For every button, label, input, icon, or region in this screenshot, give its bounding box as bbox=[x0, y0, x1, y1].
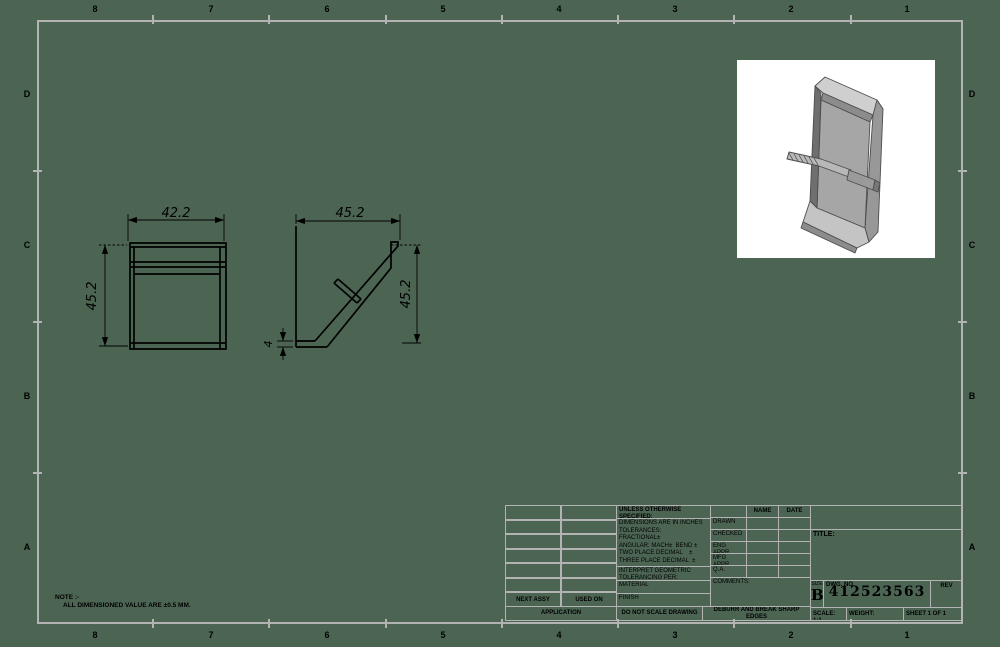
interpret-geometric-label: INTERPRET GEOMETRIC TOLERANCING PER: bbox=[616, 566, 711, 581]
dim-front-height: 45.2 bbox=[85, 282, 100, 311]
do-not-scale-label: DO NOT SCALE DRAWING bbox=[616, 606, 703, 621]
next-assy-label: NEXT ASSY bbox=[505, 592, 561, 607]
dim-side-width: 45.2 bbox=[336, 206, 365, 221]
size-cell: SIZE B bbox=[810, 580, 824, 608]
table-cell bbox=[561, 520, 617, 535]
front-view: 42.2 45.2 bbox=[85, 206, 226, 349]
tolerance-line: FRACTIONAL± bbox=[619, 535, 708, 543]
side-view: 45.2 45.2 4 bbox=[262, 206, 421, 360]
table-cell bbox=[561, 505, 617, 520]
tolerance-line: TWO PLACE DECIMAL ± bbox=[619, 550, 708, 558]
dwg-number: 412523563 bbox=[826, 589, 928, 596]
table-cell bbox=[561, 578, 617, 593]
note-line1: NOTE :- bbox=[55, 594, 191, 602]
tolerance-line: DIMENSIONS ARE IN INCHES bbox=[619, 520, 708, 528]
unless-otherwise-specified: UNLESS OTHERWISE SPECIFIED: bbox=[616, 505, 711, 519]
deburr-label: DEBURR AND BREAK SHARP EDGES bbox=[702, 606, 811, 621]
table-cell bbox=[505, 549, 561, 564]
rev-label: REV bbox=[930, 580, 963, 608]
table-cell bbox=[505, 578, 561, 593]
title-label: TITLE: bbox=[810, 529, 963, 581]
size-value: B bbox=[811, 588, 823, 603]
isometric-part bbox=[737, 60, 935, 258]
dwg-no-cell: DWG. NO. 412523563 bbox=[823, 580, 931, 608]
tolerance-line: THREE PLACE DECIMAL ± bbox=[619, 558, 708, 566]
used-on-label: USED ON bbox=[561, 592, 617, 607]
scale-label: SCALE: 1:1 bbox=[810, 607, 847, 621]
table-cell bbox=[505, 520, 561, 535]
weight-label: WEIGHT: bbox=[846, 607, 904, 621]
dim-front-width: 42.2 bbox=[162, 206, 191, 221]
dim-side-thickness: 4 bbox=[262, 341, 275, 348]
application-table: NEXT ASSY USED ON bbox=[505, 505, 617, 607]
table-cell bbox=[505, 563, 561, 578]
application-label: APPLICATION bbox=[505, 606, 617, 621]
table-cell bbox=[561, 563, 617, 578]
table-cell bbox=[505, 534, 561, 549]
tolerance-block: DIMENSIONS ARE IN INCHES TOLERANCES: FRA… bbox=[616, 518, 711, 567]
drawing-note: NOTE :- ALL DIMENSIONED VALUE ARE ±0.5 M… bbox=[55, 594, 191, 610]
note-line2: ALL DIMENSIONED VALUE ARE ±0.5 MM. bbox=[55, 602, 191, 610]
comments-label: COMMENTS: bbox=[710, 577, 811, 607]
material-label: MATERIAL bbox=[616, 580, 711, 594]
table-cell bbox=[561, 549, 617, 564]
tolerance-line: ANGULAR: MACH± BEND ± bbox=[619, 543, 708, 551]
dim-side-height: 45.2 bbox=[399, 280, 414, 309]
sheet-label: SHEET 1 OF 1 bbox=[903, 607, 963, 621]
isometric-view bbox=[737, 60, 935, 258]
table-cell bbox=[810, 505, 963, 530]
table-cell bbox=[505, 505, 561, 520]
drawing-sheet: 8 7 6 5 4 3 2 1 8 7 6 5 4 3 2 1 D C B A … bbox=[0, 0, 1000, 647]
finish-label: FINISH bbox=[616, 593, 711, 607]
table-cell bbox=[561, 534, 617, 549]
tolerance-line: TOLERANCES: bbox=[619, 528, 708, 536]
